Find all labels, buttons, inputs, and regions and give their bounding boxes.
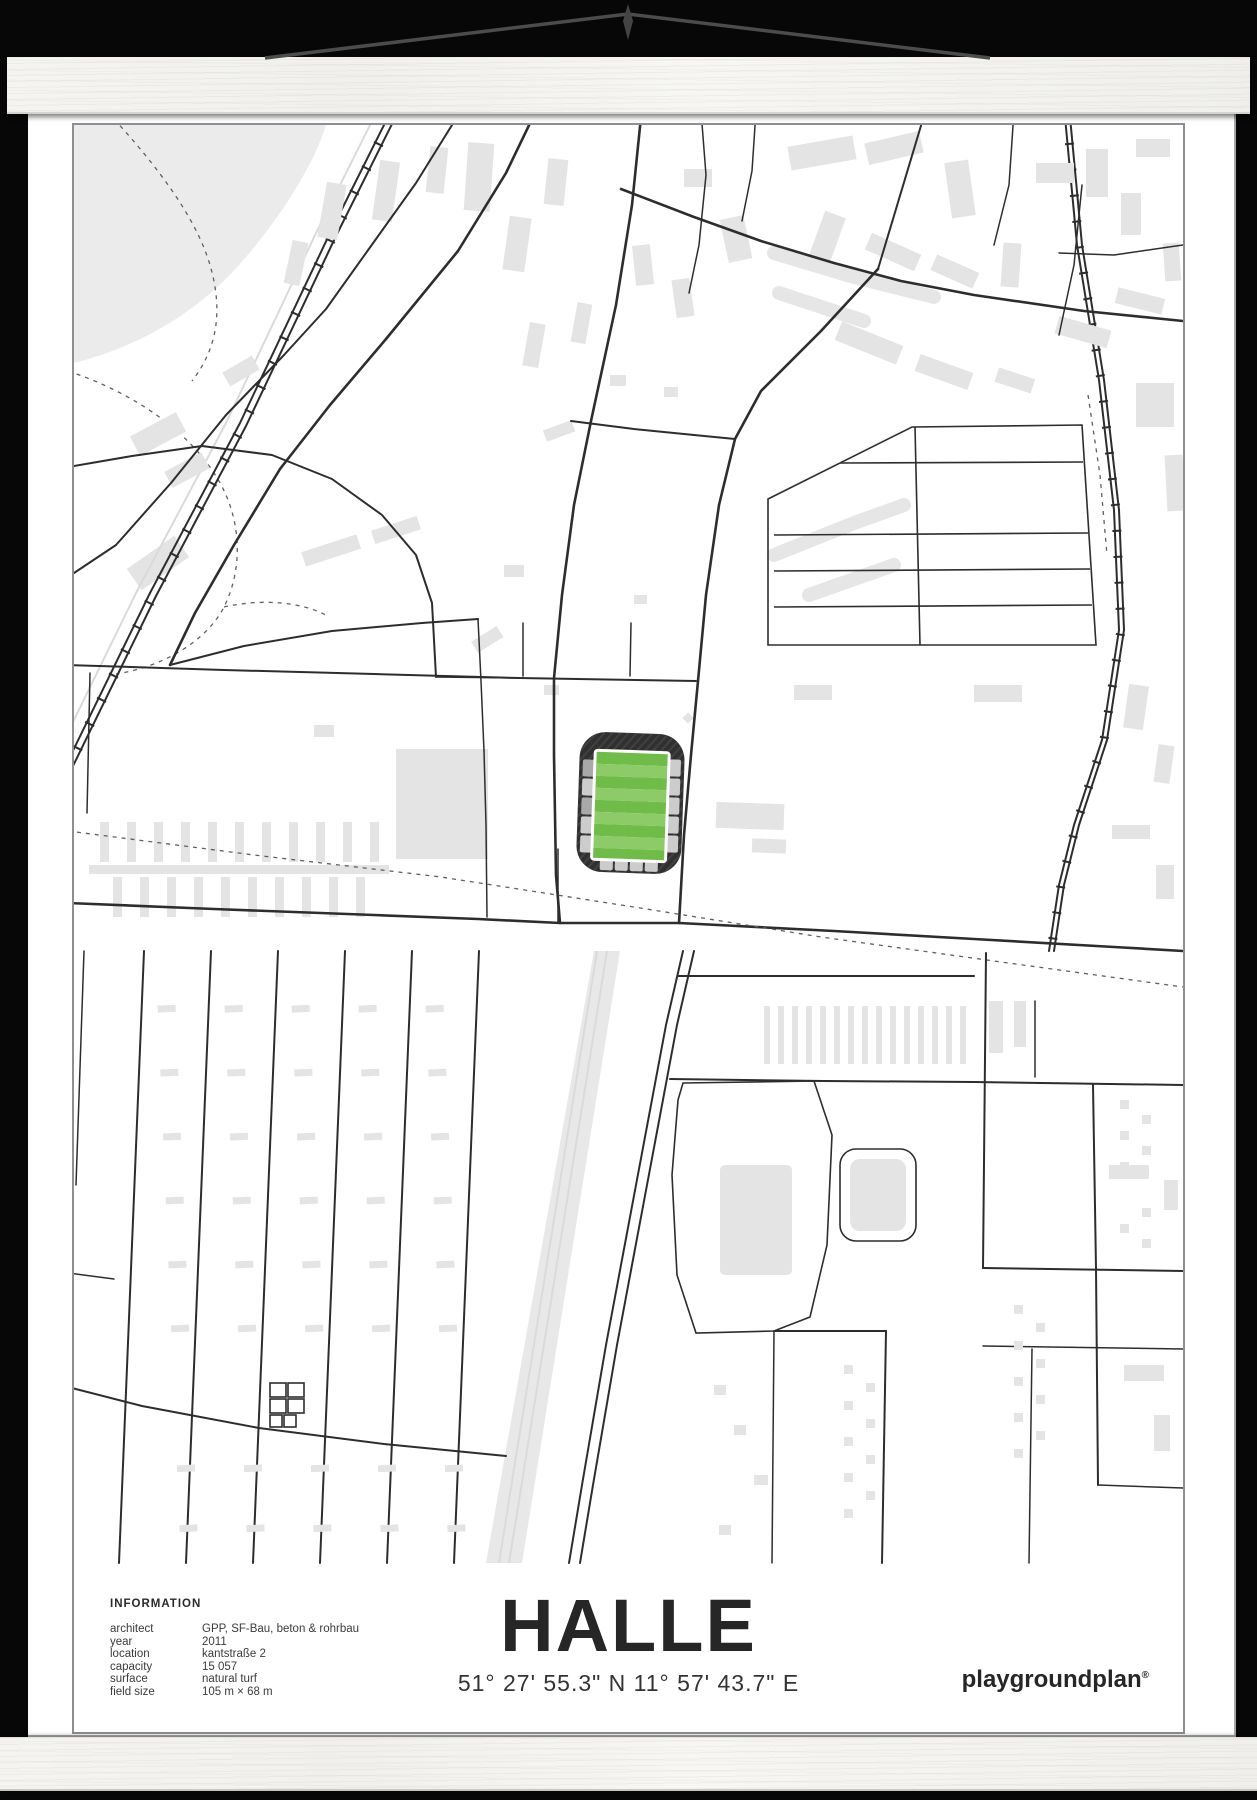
allotment-grid <box>768 425 1096 645</box>
poster-photo-scene: INFORMATION architect GPP, SF-Bau, beton… <box>0 0 1257 1800</box>
map-frame: INFORMATION architect GPP, SF-Bau, beton… <box>72 123 1185 1734</box>
building-bands <box>774 253 934 595</box>
rowhouse-teeth <box>158 1005 466 1532</box>
rowhouse-band-left <box>89 822 389 917</box>
poster-sheet: INFORMATION architect GPP, SF-Bau, beton… <box>28 112 1236 1737</box>
page-title: HALLE <box>74 1583 1183 1668</box>
hanger-bar-bottom <box>0 1737 1257 1791</box>
city-map <box>74 125 1183 1565</box>
hanger-bar-top <box>7 57 1250 114</box>
trademark-icon: ® <box>1142 1670 1149 1681</box>
hanger-string <box>0 0 1257 62</box>
string-knot <box>623 4 633 40</box>
stadium-pitch <box>593 752 668 860</box>
courtyard-cluster <box>270 1383 304 1427</box>
stadium-icon <box>576 731 686 875</box>
brand-logo: playgroundplan® <box>962 1666 1149 1694</box>
park-area <box>74 125 326 674</box>
streets-lower-left <box>74 951 506 1563</box>
